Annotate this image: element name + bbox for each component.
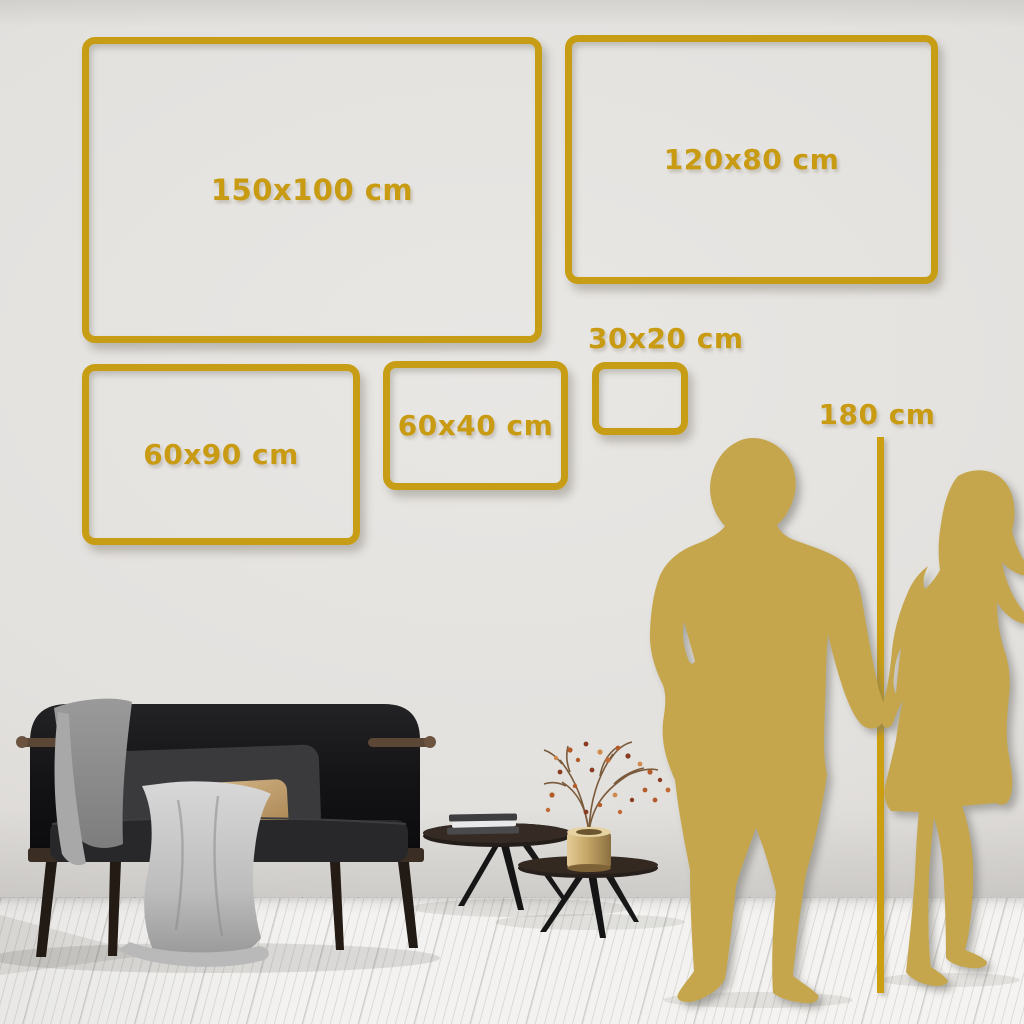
size-frame-30x20 <box>592 362 688 435</box>
size-frame-60x90: 60x90 cm <box>82 364 360 545</box>
size-label-30x20: 30x20 cm <box>588 322 788 355</box>
size-frame-150x100: 150x100 cm <box>82 37 542 343</box>
height-reference-label: 180 cm <box>797 398 957 431</box>
size-label-120x80: 120x80 cm <box>664 143 840 176</box>
size-frame-60x40: 60x40 cm <box>383 361 568 490</box>
height-reference-line <box>877 437 884 993</box>
wood-floor <box>0 897 1024 1024</box>
size-label-60x40: 60x40 cm <box>398 409 554 442</box>
size-frame-120x80: 120x80 cm <box>565 35 938 284</box>
size-label-60x90: 60x90 cm <box>143 438 299 471</box>
size-guide-scene: 150x100 cm 120x80 cm 60x90 cm 60x40 cm 3… <box>0 0 1024 1024</box>
size-label-150x100: 150x100 cm <box>211 173 413 207</box>
